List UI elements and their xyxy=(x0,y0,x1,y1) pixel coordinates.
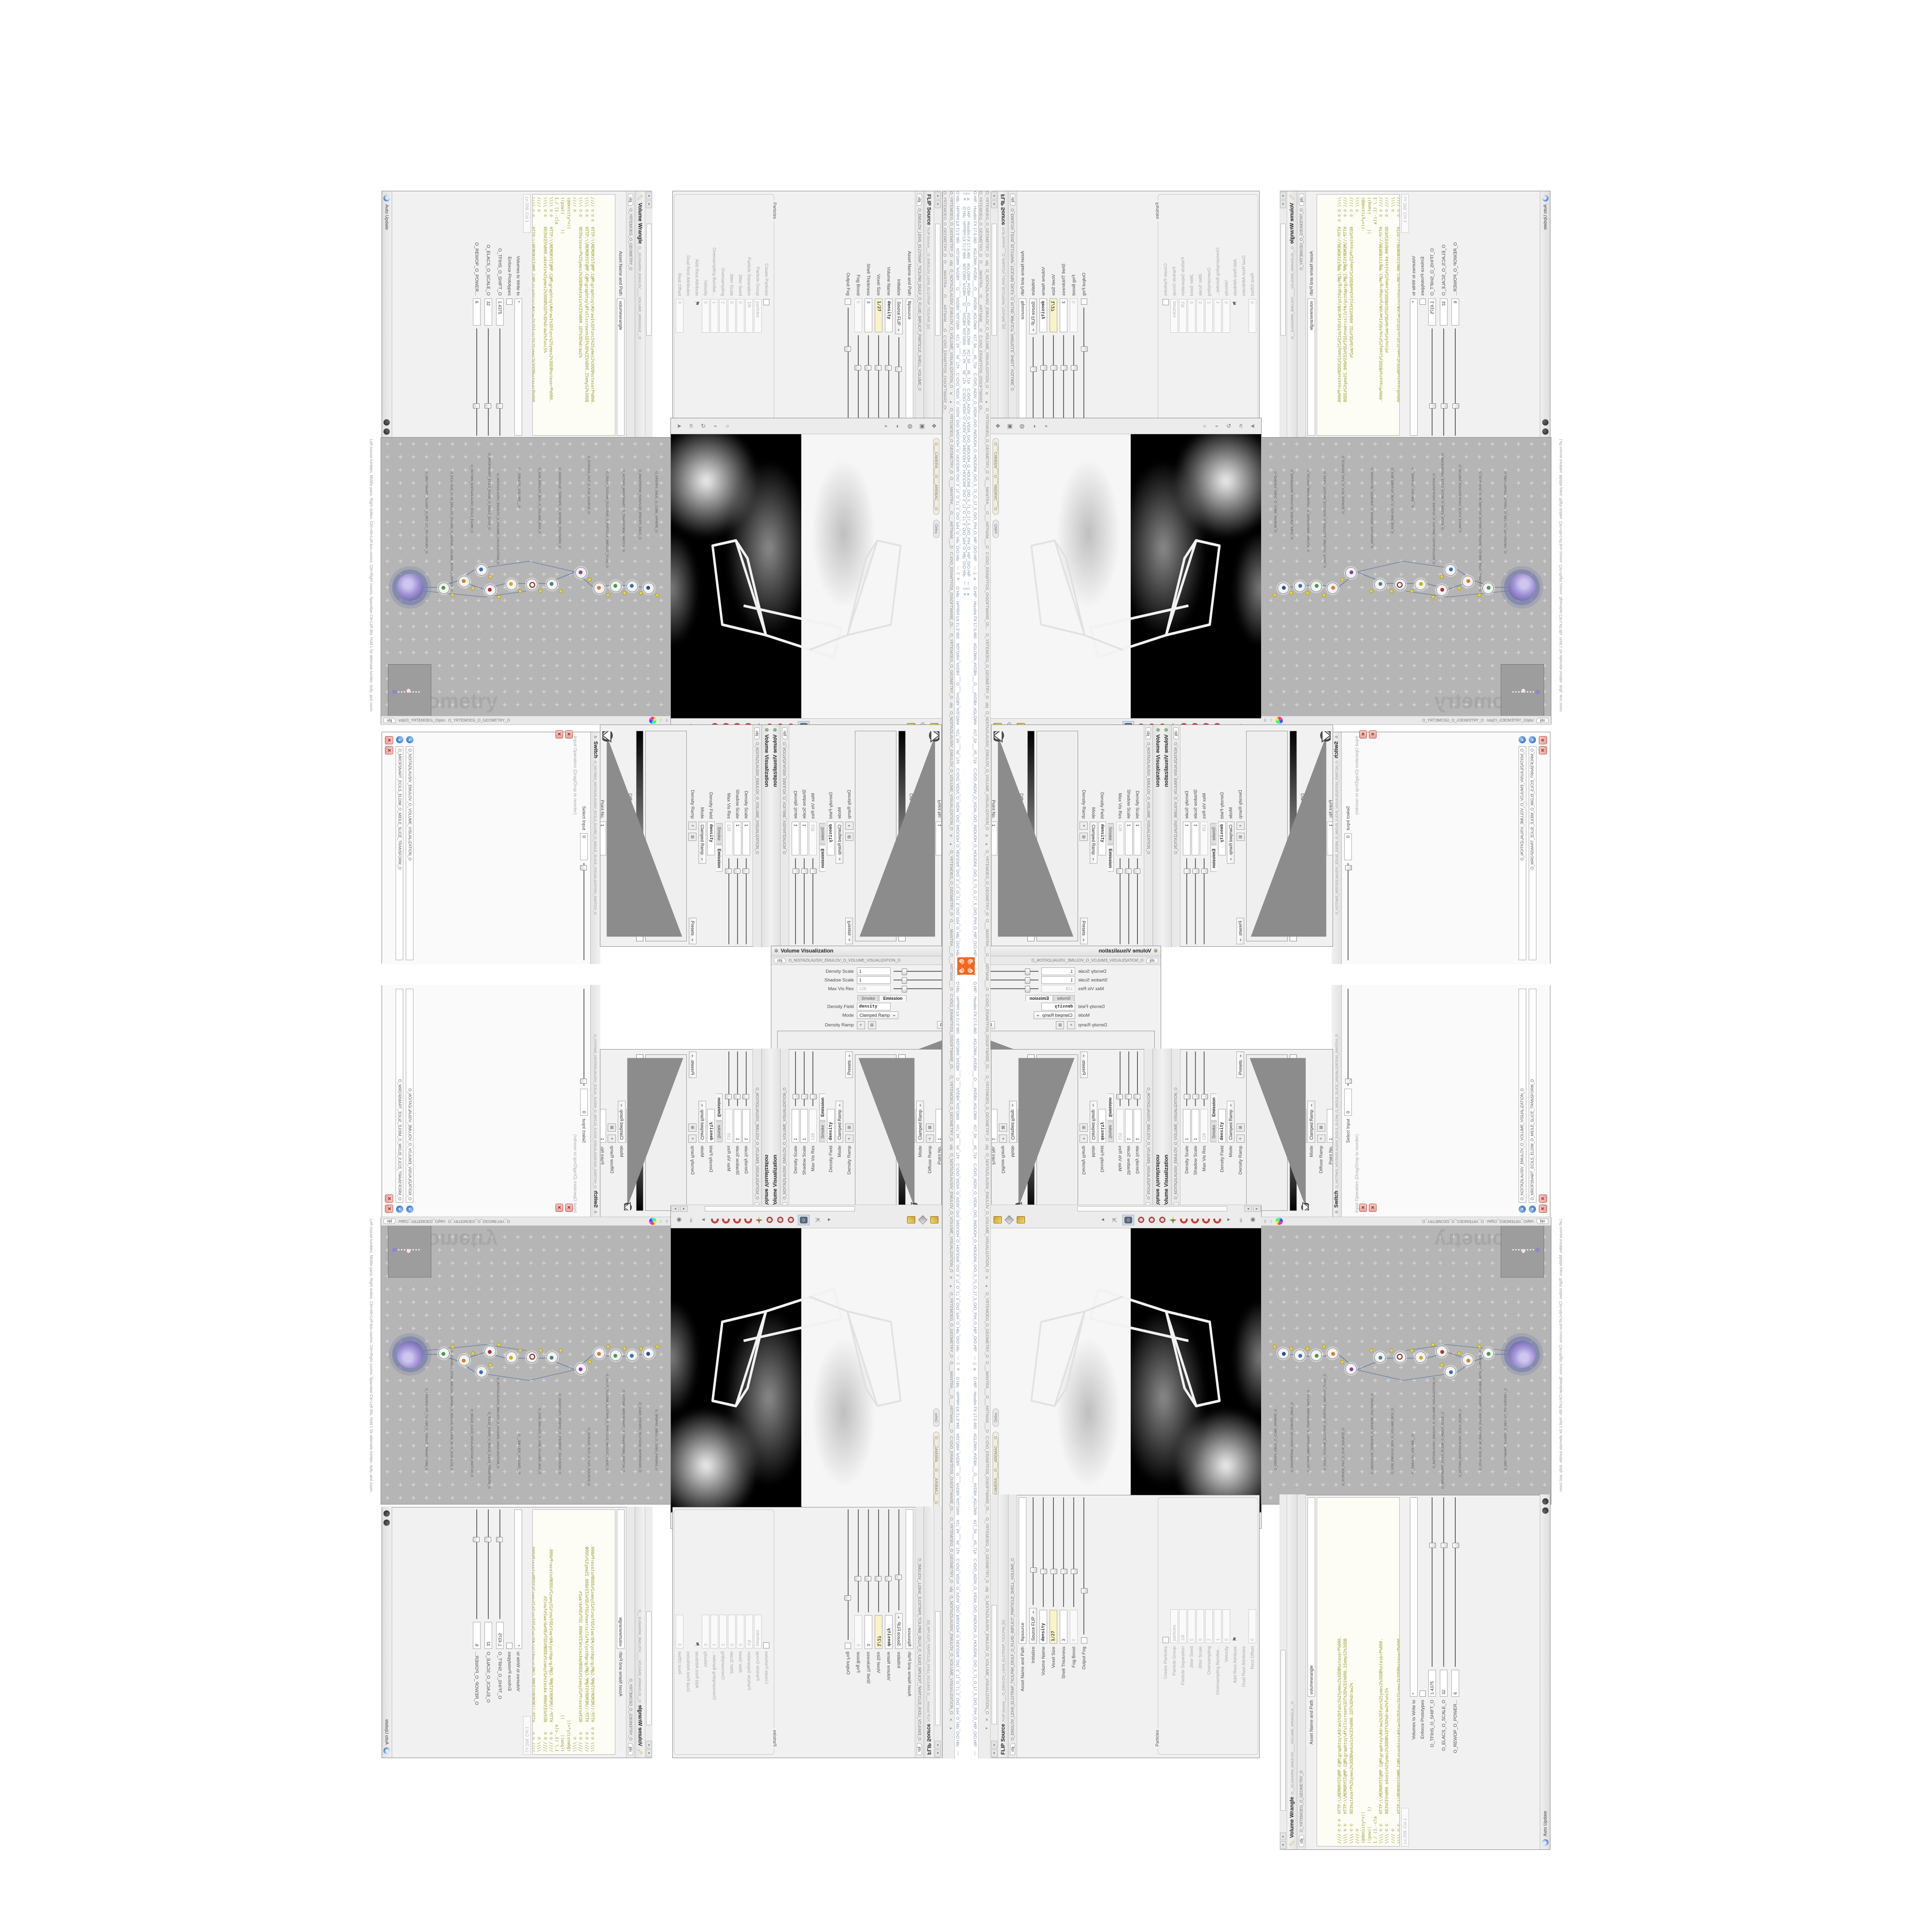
close-icon[interactable]: ✕ xyxy=(555,730,563,739)
tab-smoke[interactable]: Smoke xyxy=(1108,1121,1114,1142)
param-slider[interactable] xyxy=(1033,1497,1034,1605)
sphere-display-node[interactable] xyxy=(397,574,424,601)
breadcrumb[interactable]: obj xyxy=(917,1743,922,1755)
lasso-icon[interactable]: ⌁ xyxy=(1212,422,1221,430)
pointer-flag-icon[interactable]: ⇲ xyxy=(1110,1216,1119,1224)
update-mode-icon[interactable] xyxy=(1542,1839,1548,1846)
node-display-flag[interactable] xyxy=(539,589,542,593)
node-display-flag[interactable] xyxy=(1440,575,1444,579)
node-display-flag[interactable] xyxy=(1340,578,1344,582)
delete-input-button[interactable]: ✕ xyxy=(1539,1205,1547,1213)
geometry-tab[interactable]: O_YRTEMOEG_O_GEOMETRY_O xyxy=(628,209,633,270)
down-arrow-icon[interactable]: ⇩ xyxy=(1264,718,1267,723)
auto-update-selector[interactable]: Auto Update xyxy=(384,1719,390,1745)
reorder-arrow-icon[interactable]: ◂ xyxy=(396,1206,403,1213)
update-mode-icon[interactable] xyxy=(1542,195,1548,201)
vex-code-editor[interactable]: //// © © © HTTP:\\MEMORYST@MP.C@M\grapht… xyxy=(532,194,615,436)
gray-diamond-icon[interactable] xyxy=(918,1215,927,1224)
sop-node[interactable] xyxy=(526,579,538,590)
density-ramp-editor[interactable] xyxy=(1037,1054,1078,1211)
display-options-badge[interactable]: D xyxy=(798,1215,810,1225)
sphere-display-node[interactable] xyxy=(1508,574,1535,601)
delete-input-button[interactable]: ✕ xyxy=(1539,1194,1547,1203)
sop-node[interactable] xyxy=(438,1348,450,1359)
tab-emission[interactable]: Emission xyxy=(1108,1094,1114,1121)
close-icon[interactable]: ✕ xyxy=(555,1204,563,1212)
select-arrow-icon[interactable]: ➤ xyxy=(1249,422,1257,430)
vex-code-editor[interactable]: //// © © © HTTP:\\MEMORYST@MP.C@M\grapht… xyxy=(532,1509,615,1755)
param-value[interactable]: 0 xyxy=(728,1615,736,1648)
param-value[interactable]: 0 xyxy=(1196,299,1204,333)
param-slider[interactable] xyxy=(888,1509,889,1612)
param-value[interactable]: 128 xyxy=(1200,1109,1208,1143)
param-value[interactable]: 1/9 xyxy=(1179,1609,1187,1643)
select-input-field[interactable]: 0 xyxy=(580,833,588,860)
shade-mode-icon[interactable]: ◍ xyxy=(1018,422,1026,430)
density-ramp-editor[interactable] xyxy=(1246,731,1288,941)
sop-node[interactable] xyxy=(1294,581,1306,592)
enforce-prototypes-checkbox[interactable] xyxy=(1420,298,1426,305)
node-display-flag[interactable] xyxy=(1477,593,1481,597)
node-display-flag[interactable] xyxy=(1369,1349,1373,1352)
tab-emission[interactable]: Emission xyxy=(1210,1094,1217,1121)
select-input-slider[interactable] xyxy=(1348,989,1349,1086)
viewport-render-area[interactable]: O___CAMERA___O___AREMAC___O Ortho xyxy=(990,434,1261,718)
param-slider[interactable] xyxy=(728,1051,729,1106)
node-display-flag[interactable] xyxy=(497,595,501,599)
volumes-to-write-field[interactable]: * xyxy=(514,298,522,436)
breadcrumb[interactable]: obj xyxy=(1173,727,1179,739)
snap-point-magnet-icon[interactable] xyxy=(722,1217,730,1223)
scroll-left-icon[interactable]: ◄ xyxy=(1280,1841,1286,1849)
ramp-presets-dropdown[interactable]: Presets xyxy=(1236,918,1244,944)
param-value[interactable]: 1 xyxy=(857,967,891,975)
param-slider[interactable] xyxy=(1195,1051,1196,1106)
node-display-flag[interactable] xyxy=(1431,595,1435,599)
density-ramp-editor[interactable] xyxy=(645,1054,687,1211)
param-value[interactable]: particles xyxy=(1170,299,1178,333)
input-operator-name[interactable]: O_MROFSNART_ECILS_ELDIM_O_MIDLE_SLICE_TR… xyxy=(396,989,404,1203)
viewport-scrollbar[interactable]: ◄► xyxy=(990,1205,1261,1212)
breadcrumb[interactable]: obj xyxy=(1010,1743,1015,1755)
sop-node[interactable] xyxy=(1482,582,1494,594)
snap-magnet-icon[interactable] xyxy=(711,1217,719,1223)
param-slider[interactable] xyxy=(1053,1497,1054,1607)
param-value[interactable]: 128 xyxy=(1116,1109,1124,1143)
ramp-add-point-button[interactable]: + xyxy=(1236,1135,1245,1143)
ramp-presets-dropdown[interactable]: Presets xyxy=(1080,1051,1088,1078)
ramp-expand-button[interactable]: ⊞ xyxy=(1236,833,1245,841)
param-value[interactable]: Clamped Ramp xyxy=(1090,822,1097,864)
param-value[interactable]: 128 xyxy=(1116,822,1124,855)
param-value[interactable]: 128 xyxy=(1041,985,1075,993)
param-value[interactable]: 1 xyxy=(710,299,718,333)
translate-gizmo-icon[interactable] xyxy=(1159,1217,1166,1224)
param-slider[interactable] xyxy=(728,858,729,944)
param-slider[interactable] xyxy=(1443,1497,1444,1667)
ramp-add-point-button[interactable]: + xyxy=(1080,822,1088,830)
input-operator-name[interactable]: O_MROFSNART_ECILS_ELDIM_O_MIDLE_SLICE_TR… xyxy=(1529,746,1536,960)
auto-update-selector[interactable]: Auto Update xyxy=(1543,1811,1548,1836)
tab-emission[interactable]: Emission xyxy=(1108,845,1114,872)
param-slider[interactable] xyxy=(1128,858,1129,944)
tab-smoke[interactable]: Smoke xyxy=(1053,995,1075,1001)
param-value[interactable]: density xyxy=(1218,822,1226,855)
pointer-flag-icon[interactable]: ⇲ xyxy=(813,1216,822,1224)
param-value[interactable]: ⚑ xyxy=(693,1640,701,1648)
sop-node[interactable] xyxy=(546,1351,558,1363)
param-value[interactable]: 3 xyxy=(1060,1610,1067,1644)
camera-selector-pill[interactable]: O___CAMERA___O___AREMAC___O xyxy=(933,1432,939,1508)
view-tumble-icon[interactable]: ↻ xyxy=(1224,422,1233,430)
param-value[interactable]: Source FLIP xyxy=(895,1613,903,1649)
camera-selector-pill[interactable]: O___CAMERA___O___AREMAC___O xyxy=(933,438,939,515)
param-value[interactable]: 1/27 xyxy=(1050,298,1057,332)
param-slider[interactable] xyxy=(488,328,489,436)
asset-name-field[interactable]: flipsource xyxy=(1019,1497,1026,1644)
sop-node[interactable] xyxy=(1310,581,1322,592)
param-value[interactable]: 128 xyxy=(1200,822,1208,855)
param-slider[interactable] xyxy=(848,1509,849,1640)
sop-node[interactable] xyxy=(476,564,487,576)
param-value[interactable]: Clamped Ramp xyxy=(836,1101,843,1143)
param-value[interactable]: 1 xyxy=(1327,1109,1333,1143)
volumes-to-write-field[interactable]: * xyxy=(1410,298,1418,436)
param-value[interactable]: 1/27 xyxy=(875,1615,882,1649)
param-slider[interactable] xyxy=(848,308,849,436)
sop-node[interactable] xyxy=(476,1366,487,1378)
node-display-flag[interactable] xyxy=(1440,1363,1444,1367)
param-slider[interactable] xyxy=(746,858,747,944)
view-tumble-icon[interactable]: ↻ xyxy=(699,422,708,430)
param-value[interactable]: density xyxy=(885,1615,893,1649)
close-icon[interactable]: ✕ xyxy=(1369,1204,1377,1212)
node-display-flag[interactable] xyxy=(559,1349,563,1352)
ramp-add-point-button[interactable]: + xyxy=(857,1021,865,1029)
sop-node[interactable] xyxy=(643,582,654,594)
param-value[interactable]: 1/9 xyxy=(745,1615,753,1648)
node-display-flag[interactable] xyxy=(451,1345,455,1349)
camera-icon[interactable]: ⌖ xyxy=(881,422,890,430)
glove-icon[interactable]: ✌︎ xyxy=(687,1216,696,1224)
sop-node[interactable] xyxy=(626,1350,638,1361)
node-display-flag[interactable] xyxy=(1306,1347,1309,1350)
ramp-expand-button[interactable]: ⊞ xyxy=(689,1123,697,1132)
node-display-flag[interactable] xyxy=(471,586,475,590)
ramp-presets-dropdown[interactable]: Presets xyxy=(845,918,853,944)
snap-curve-magnet-icon[interactable] xyxy=(1191,1217,1199,1223)
node-display-flag[interactable] xyxy=(518,1349,522,1352)
param-value[interactable]: 128 xyxy=(725,1109,733,1143)
sop-node[interactable] xyxy=(1327,582,1338,594)
scale-gizmo-icon[interactable] xyxy=(787,1217,795,1224)
scroll-left-icon[interactable]: ◄ xyxy=(646,192,652,199)
node-display-flag[interactable] xyxy=(623,591,626,595)
param-value[interactable]: 0 xyxy=(1249,1609,1256,1643)
param-value[interactable]: 1 xyxy=(792,1109,799,1143)
sop-node[interactable] xyxy=(575,567,587,579)
param-value[interactable]: 0 xyxy=(854,1615,862,1649)
geometry-tab[interactable]: O_YRTEMOEG_O_GEOMETRY_O xyxy=(448,1219,510,1223)
sop-node[interactable] xyxy=(484,1346,496,1357)
param-value[interactable]: 128 xyxy=(809,822,817,855)
param-value-field[interactable]: 1.4375 xyxy=(1428,298,1436,326)
tab-emission[interactable]: Emission xyxy=(1026,995,1053,1001)
node-display-flag[interactable] xyxy=(1457,586,1461,590)
asset-name-field[interactable]: volumewrangle xyxy=(617,298,625,436)
tab-smoke[interactable]: Smoke xyxy=(1210,1121,1217,1142)
sop-node[interactable] xyxy=(546,579,558,590)
sphere-display-node[interactable] xyxy=(1508,1341,1535,1368)
breadcrumb[interactable]: obj xyxy=(754,727,760,739)
pane-scrollbar[interactable]: ◄► xyxy=(934,191,941,439)
flipbook-icon[interactable]: ❖ xyxy=(930,422,938,430)
param-value[interactable]: 0 xyxy=(676,1615,683,1648)
sop-node[interactable] xyxy=(626,581,638,592)
node-display-flag[interactable] xyxy=(1306,591,1309,595)
param-value[interactable]: 1 xyxy=(800,1109,808,1143)
param-slider[interactable] xyxy=(858,1509,859,1612)
param-value[interactable]: Clamped Ramp xyxy=(836,822,843,864)
param-value[interactable]: 1 xyxy=(734,822,741,855)
sop-node[interactable] xyxy=(458,1354,470,1366)
param-value[interactable] xyxy=(1163,299,1169,305)
density-ramp-editor[interactable] xyxy=(777,1031,961,1050)
tab-emission[interactable]: Emission xyxy=(819,1094,825,1121)
param-slider[interactable] xyxy=(1083,1497,1084,1634)
scroll-left-icon[interactable]: ◄ xyxy=(1280,192,1286,199)
param-value[interactable]: density xyxy=(707,1109,715,1143)
delete-input-button[interactable]: ✕ xyxy=(1539,736,1547,744)
glove-icon[interactable]: ✌︎ xyxy=(1236,1216,1245,1224)
lock-camera-icon[interactable]: ▣ xyxy=(1006,422,1014,430)
sop-node[interactable] xyxy=(438,582,450,594)
ortho-pill[interactable]: Ortho xyxy=(933,520,939,538)
asset-name-field[interactable]: flipsource xyxy=(906,1509,913,1649)
param-slider[interactable] xyxy=(1432,328,1433,436)
view-pan-icon[interactable]: ✋︎ xyxy=(1236,422,1245,430)
ortho-pill[interactable]: Ortho xyxy=(993,520,999,538)
right-tab-strip[interactable]: O_YRTEMOEG_O_GEOMETRY_O obj O_NOITAZILAU… xyxy=(978,191,991,1759)
snap-grid-magnet-icon[interactable] xyxy=(744,1217,752,1223)
node-display-flag[interactable] xyxy=(1322,1345,1326,1349)
rotate-gizmo-icon[interactable] xyxy=(777,1217,784,1224)
breadcrumb[interactable]: obj xyxy=(774,958,786,963)
node-display-flag[interactable] xyxy=(451,593,455,597)
sop-node[interactable] xyxy=(575,1363,587,1375)
density-ramp-editor[interactable] xyxy=(855,731,896,941)
reorder-arrow-icon[interactable]: ◂ xyxy=(406,1206,413,1213)
node-display-flag[interactable] xyxy=(1340,1360,1344,1364)
ramp-expand-button[interactable]: ⊞ xyxy=(845,833,853,841)
breadcrumb[interactable]: obj xyxy=(1010,194,1015,206)
node-display-flag[interactable] xyxy=(1410,589,1414,593)
volumes-to-write-field[interactable]: * xyxy=(514,1509,522,1649)
density-ramp-editor[interactable] xyxy=(971,1031,1155,1050)
node-display-flag[interactable] xyxy=(1431,1343,1435,1347)
param-value[interactable]: 0 xyxy=(1249,299,1256,333)
param-value[interactable] xyxy=(1081,1637,1087,1644)
close-icon[interactable]: ✕ xyxy=(565,1204,573,1212)
param-value[interactable]: 1 xyxy=(857,976,891,984)
tab-emission[interactable]: Emission xyxy=(879,995,906,1001)
display-options-badge[interactable]: D xyxy=(1122,1215,1134,1225)
sop-node[interactable] xyxy=(1294,1350,1306,1361)
param-slider[interactable] xyxy=(1083,308,1084,436)
sop-node[interactable] xyxy=(526,1351,538,1363)
translate-gizmo-icon[interactable] xyxy=(766,1217,773,1224)
next-arrow-icon[interactable]: ▸ xyxy=(1098,1216,1107,1224)
node-display-flag[interactable] xyxy=(606,593,610,597)
ramp-presets-dropdown[interactable]: Presets xyxy=(845,1051,853,1078)
scroll-left-icon[interactable]: ◄ xyxy=(646,1749,652,1757)
volumes-to-write-field[interactable]: * xyxy=(1410,1497,1418,1697)
network-breadcrumb[interactable]: obj xyxy=(1536,718,1548,723)
enforce-prototypes-checkbox[interactable] xyxy=(1420,1690,1426,1697)
tab-smoke[interactable]: Smoke xyxy=(1210,823,1217,844)
select-input-field[interactable]: 0 xyxy=(1344,1089,1352,1116)
param-slider[interactable] xyxy=(1063,1497,1064,1607)
next-arrow-icon[interactable]: ▸ xyxy=(825,1216,834,1224)
sop-node[interactable] xyxy=(458,576,470,587)
sop-node[interactable] xyxy=(1345,1363,1357,1375)
param-value[interactable]: 1 xyxy=(1214,299,1222,333)
ramp-expand-button[interactable]: ⊞ xyxy=(1080,833,1088,841)
ramp-add-point-button[interactable]: + xyxy=(689,1135,697,1143)
geometry-tab[interactable]: O_YRTEMOEG_O_GEOMETRY_O xyxy=(448,718,510,723)
sop-node[interactable] xyxy=(1436,584,1448,596)
node-display-flag[interactable] xyxy=(655,1345,659,1349)
param-value[interactable]: 3 xyxy=(865,1615,872,1649)
param-value[interactable]: 128 xyxy=(857,985,891,993)
network-breadcrumb[interactable]: obj xyxy=(384,1219,396,1224)
node-display-flag[interactable] xyxy=(1457,1351,1461,1355)
sop-node[interactable] xyxy=(506,579,517,590)
param-value[interactable]: 3 xyxy=(1060,298,1067,332)
param-value[interactable]: 1 xyxy=(1192,822,1199,855)
tab-emission[interactable]: Emission xyxy=(716,845,723,872)
tab-smoke[interactable]: Smoke xyxy=(819,1121,825,1142)
breadcrumb[interactable]: obj xyxy=(1146,727,1151,739)
param-value-field[interactable]: 1.4375 xyxy=(496,1622,504,1649)
param-value[interactable]: density xyxy=(1039,298,1047,332)
param-value[interactable]: 1 xyxy=(936,1109,941,1143)
param-value-field[interactable]: 6 xyxy=(473,1622,481,1649)
color-wheel-icon[interactable] xyxy=(649,1218,656,1225)
param-slider[interactable] xyxy=(746,1051,747,1106)
select-input-field[interactable]: 0 xyxy=(1344,833,1352,860)
snap-magnet-icon[interactable] xyxy=(1213,1217,1221,1223)
camera-icon[interactable]: ⌖ xyxy=(1042,422,1051,430)
param-value[interactable] xyxy=(764,1642,770,1648)
sop-node[interactable] xyxy=(1462,576,1474,587)
scroll-right-icon[interactable]: ► xyxy=(1280,200,1286,208)
auto-update-selector[interactable]: Auto Update xyxy=(1543,204,1548,230)
param-value[interactable]: 128 xyxy=(725,822,733,855)
param-value[interactable]: 2 xyxy=(719,1615,727,1648)
sop-node[interactable] xyxy=(506,1351,517,1363)
breadcrumb[interactable]: obj xyxy=(1299,194,1304,206)
select-input-field[interactable]: 0 xyxy=(580,1089,588,1116)
node-display-flag[interactable] xyxy=(623,1347,626,1350)
vex-code-editor[interactable]: //// © © © HTTP:\\MEMORYST@MP.C@M\grapht… xyxy=(1317,194,1400,436)
param-value[interactable]: 0 xyxy=(737,1615,744,1648)
reorder-arrow-icon[interactable]: ◂ xyxy=(1529,736,1536,743)
reorder-arrow-icon[interactable]: ◂ xyxy=(396,736,403,743)
pane-scrollbar[interactable]: ◄ ► xyxy=(1279,1494,1287,1849)
param-value[interactable]: 3 xyxy=(865,298,872,332)
sop-node[interactable] xyxy=(610,1350,622,1361)
param-value[interactable]: 0 xyxy=(1222,299,1230,333)
param-slider[interactable] xyxy=(499,328,500,436)
breadcrumb[interactable]: obj xyxy=(917,194,922,206)
node-display-flag[interactable] xyxy=(1369,589,1373,593)
param-value[interactable]: 0 xyxy=(702,299,710,333)
tab-emission[interactable]: Emission xyxy=(1210,845,1217,872)
tab-smoke[interactable]: Smoke xyxy=(857,995,879,1001)
prev-arrow-icon[interactable]: ◂ xyxy=(1224,1216,1233,1224)
param-value[interactable]: particles xyxy=(754,299,762,333)
asset-name-field[interactable]: volumewrangle xyxy=(1307,298,1315,436)
asset-name-field[interactable]: flipsource xyxy=(1019,298,1026,436)
ramp-add-point-button[interactable]: + xyxy=(1080,1135,1088,1143)
ortho-pill[interactable]: Ortho xyxy=(993,1408,999,1427)
down-arrow-icon[interactable]: ⇩ xyxy=(665,1219,668,1223)
left-tab-strip[interactable]: O_YRTEMOEG_O_GEOMETRY_O obj O_NOITAZILAU… xyxy=(942,191,955,1759)
sop-node[interactable] xyxy=(484,584,496,596)
param-slider[interactable] xyxy=(1204,858,1205,944)
ramp-expand-button[interactable]: ⊞ xyxy=(1236,1123,1245,1132)
param-value-field[interactable]: 32 xyxy=(1440,298,1448,326)
sop-node[interactable] xyxy=(1415,579,1426,590)
node-display-flag[interactable] xyxy=(1410,1349,1414,1352)
param-value[interactable]: 1/9 xyxy=(745,299,753,333)
param-value[interactable]: 0 xyxy=(1070,298,1078,332)
param-value-field[interactable]: 6 xyxy=(1451,1670,1459,1697)
param-value[interactable]: Source FLIP xyxy=(1029,298,1037,334)
param-value[interactable]: 1 xyxy=(1041,976,1075,984)
param-slider[interactable] xyxy=(1186,1051,1187,1106)
param-value[interactable]: particles xyxy=(1170,1609,1178,1643)
node-display-flag[interactable] xyxy=(518,589,522,593)
param-value[interactable]: Clamped Ramp xyxy=(1227,822,1235,864)
snap-grid-magnet-icon[interactable] xyxy=(1180,1217,1188,1223)
param-value[interactable]: 1 xyxy=(742,822,750,855)
density-ramp-editor[interactable] xyxy=(855,1054,896,1211)
geometry-tab[interactable]: O_YRTEMOEG_O_GEOMETRY_O xyxy=(1299,209,1304,270)
node-display-flag[interactable] xyxy=(1390,1349,1393,1352)
param-slider[interactable] xyxy=(804,1051,805,1106)
param-slider[interactable] xyxy=(1443,328,1444,436)
param-value[interactable]: 1 xyxy=(992,1109,997,1143)
tab-smoke[interactable]: Smoke xyxy=(1108,823,1114,844)
sop-node[interactable] xyxy=(1436,1346,1448,1357)
viewport-render-area[interactable]: O___CAMERA___O___AREMAC___O Ortho xyxy=(671,434,942,718)
param-value[interactable] xyxy=(1081,298,1087,305)
breadcrumb[interactable]: obj xyxy=(1146,958,1158,963)
select-input-slider[interactable] xyxy=(583,989,584,1086)
up-arrow-icon[interactable]: ⇧ xyxy=(659,718,663,723)
param-value[interactable]: particles xyxy=(754,1615,762,1648)
scroll-right-icon[interactable]: ► xyxy=(646,200,652,208)
node-display-flag[interactable] xyxy=(488,1363,492,1367)
param-value[interactable]: 1/27 xyxy=(1050,1610,1057,1644)
tab-smoke[interactable]: Smoke xyxy=(716,1121,723,1142)
param-value-field[interactable]: 32 xyxy=(484,1622,492,1649)
sop-node[interactable] xyxy=(1394,1351,1406,1363)
param-value[interactable]: 1 xyxy=(1134,1109,1141,1143)
ramp-delete-point-button[interactable]: ⊠ xyxy=(926,1123,934,1132)
